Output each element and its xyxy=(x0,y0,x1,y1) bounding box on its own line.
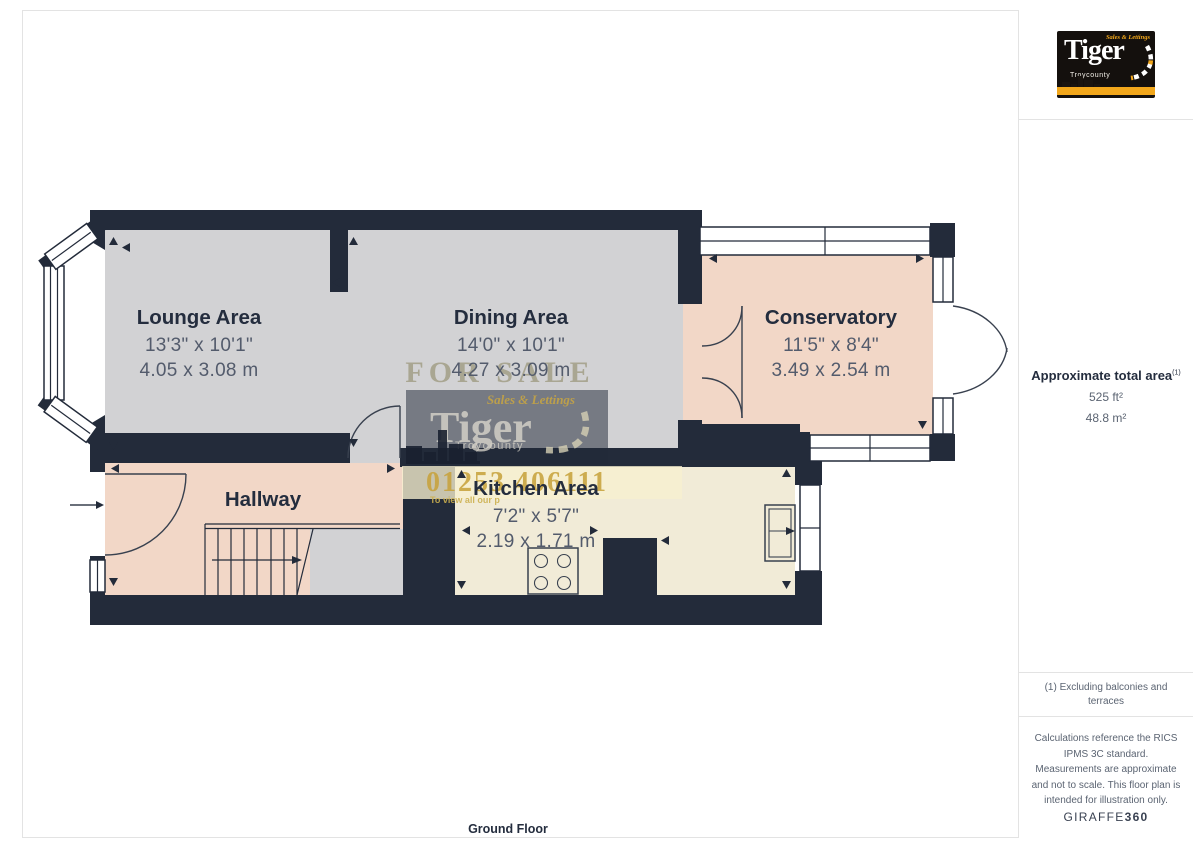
hallway-window xyxy=(90,560,105,592)
counter-unit xyxy=(765,505,795,561)
footnote: (1) Excluding balconies and terraces xyxy=(1019,673,1193,717)
conservatory-bottom-window xyxy=(810,435,930,461)
floorplan-page: FOR SALE Sales & Lettings Tiger Troycoun… xyxy=(0,0,1200,849)
disclaimer-text: Calculations reference the RICS IPMS 3C … xyxy=(1031,731,1181,809)
svg-text:Hallway: Hallway xyxy=(225,488,302,511)
lounge-floor xyxy=(105,230,348,433)
svg-text:2.19 x 1.71 m: 2.19 x 1.71 m xyxy=(476,531,595,552)
svg-text:3.49 x 2.54 m: 3.49 x 2.54 m xyxy=(771,360,890,381)
svg-text:Conservatory: Conservatory xyxy=(765,306,898,329)
conservatory-top-window xyxy=(700,227,930,255)
sidebar: Sales & Lettings Tiger Troycounty xyxy=(1018,10,1193,838)
footnote-marker: (1) xyxy=(1172,369,1181,376)
svg-text:Kitchen Area: Kitchen Area xyxy=(473,477,599,500)
total-area-imperial: 525 ft² xyxy=(1089,390,1123,404)
svg-text:4.05 x 3.08 m: 4.05 x 3.08 m xyxy=(139,360,258,381)
svg-text:Lounge Area: Lounge Area xyxy=(137,306,262,329)
svg-text:11'5" x 8'4": 11'5" x 8'4" xyxy=(783,335,879,356)
stove xyxy=(528,548,578,594)
logo-brand: Tiger xyxy=(1064,35,1124,67)
bay-window xyxy=(44,223,98,442)
svg-text:13'3" x 10'1": 13'3" x 10'1" xyxy=(145,335,253,356)
room-label-dining: Dining Area 14'0" x 10'1" 4.27 x 3.09 m xyxy=(451,306,570,381)
total-area-metric: 48.8 m² xyxy=(1086,411,1127,425)
svg-text:Dining Area: Dining Area xyxy=(454,306,569,329)
disclaimer-section: Calculations reference the RICS IPMS 3C … xyxy=(1019,717,1193,838)
giraffe360-logo: GIRAFFE360 xyxy=(1063,810,1148,824)
room-label-lounge: Lounge Area 13'3" x 10'1" 4.05 x 3.08 m xyxy=(137,306,262,381)
tiger-tail-icon xyxy=(1121,44,1155,88)
total-area-label: Approximate total area(1) xyxy=(1031,368,1180,383)
conservatory-right-windows xyxy=(933,257,953,434)
doorway-floor xyxy=(348,433,403,463)
conservatory-french-doors xyxy=(953,306,1007,394)
total-area-section: Approximate total area(1) 525 ft² 48.8 m… xyxy=(1019,120,1193,673)
agency-logo-section: Sales & Lettings Tiger Troycounty xyxy=(1019,10,1193,120)
svg-text:14'0" x 10'1": 14'0" x 10'1" xyxy=(457,335,565,356)
agency-logo: Sales & Lettings Tiger Troycounty xyxy=(1057,31,1155,98)
room-label-hallway: Hallway xyxy=(225,488,302,511)
kitchen-window xyxy=(800,485,820,571)
logo-accent-bar xyxy=(1057,87,1155,95)
svg-text:4.27 x 3.09 m: 4.27 x 3.09 m xyxy=(451,360,570,381)
watermark-sub: Troycounty xyxy=(455,440,524,452)
svg-text:7'2" x 5'7": 7'2" x 5'7" xyxy=(493,506,579,527)
room-label-conservatory: Conservatory 11'5" x 8'4" 3.49 x 2.54 m xyxy=(765,306,898,381)
floor-title: Ground Floor xyxy=(468,822,548,836)
